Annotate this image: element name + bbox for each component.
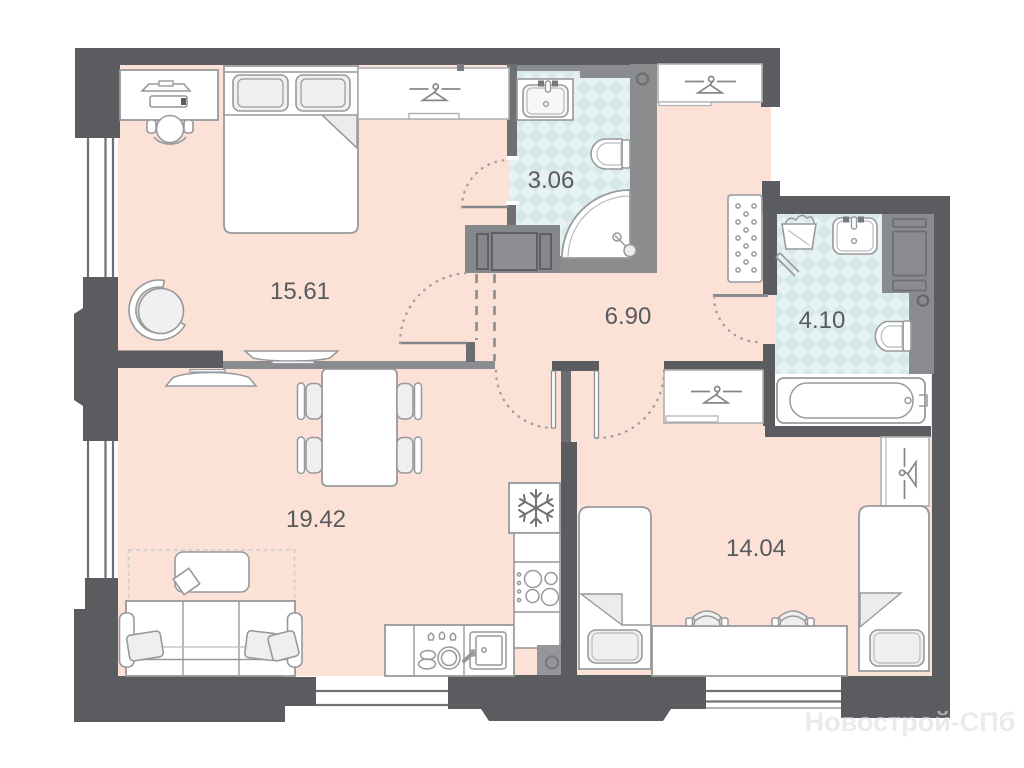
svg-text:Новострой-СПб: Новострой-СПб [805, 707, 1016, 737]
svg-text:14.04: 14.04 [726, 535, 786, 562]
svg-text:15.61: 15.61 [270, 278, 330, 305]
svg-text:6.90: 6.90 [605, 303, 652, 330]
svg-text:19.42: 19.42 [286, 506, 346, 533]
svg-text:4.10: 4.10 [799, 307, 846, 334]
svg-text:3.06: 3.06 [528, 167, 575, 194]
